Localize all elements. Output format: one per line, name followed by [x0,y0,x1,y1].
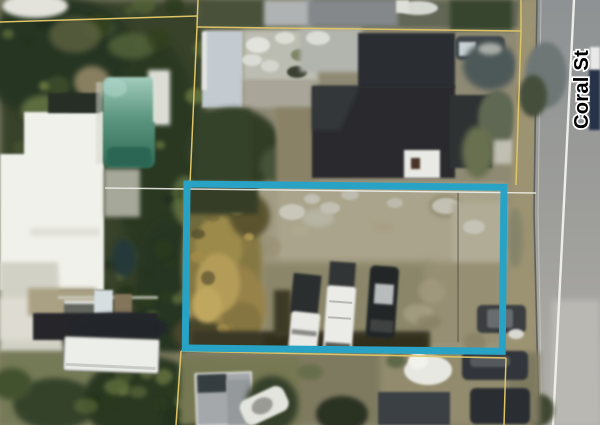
svg-text:Coral St: Coral St [571,50,593,129]
